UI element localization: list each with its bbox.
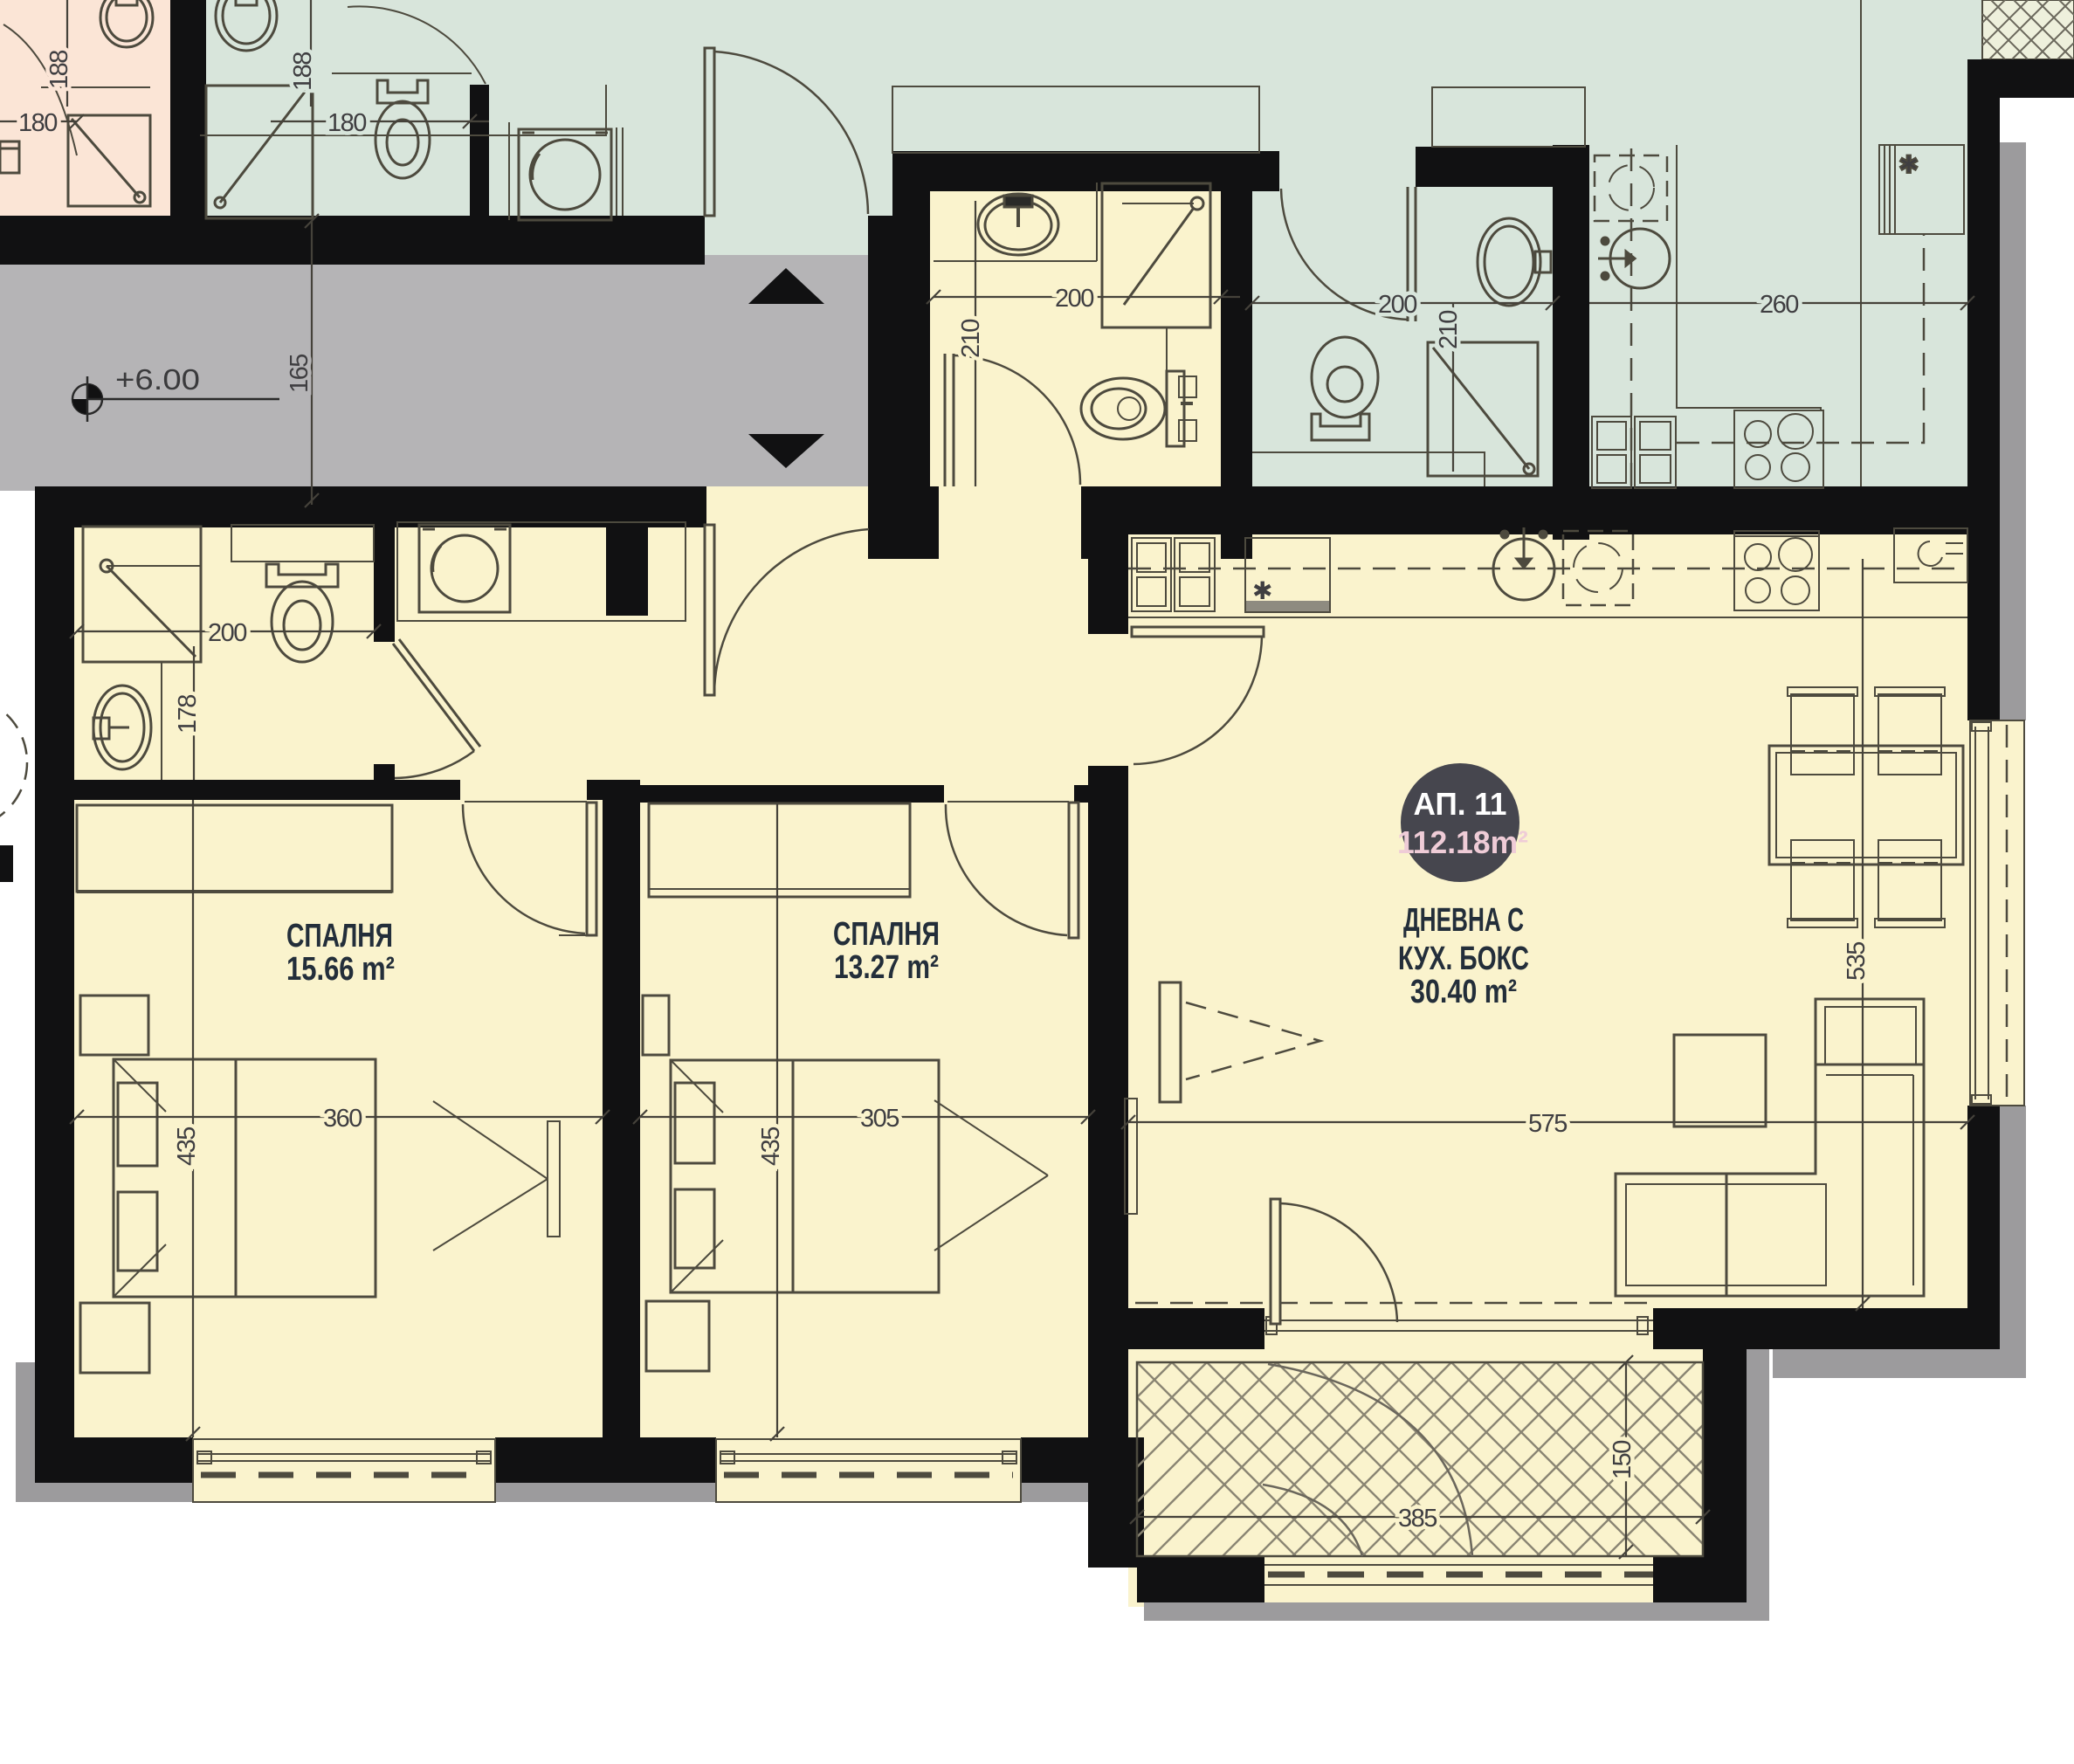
svg-text:575: 575 — [1528, 1110, 1567, 1138]
svg-text:СПАЛНЯ: СПАЛНЯ — [833, 916, 940, 953]
svg-text:435: 435 — [173, 1127, 201, 1166]
svg-text:200: 200 — [1055, 285, 1093, 313]
svg-text:13.27 m²: 13.27 m² — [834, 949, 939, 986]
svg-text:165: 165 — [286, 355, 314, 393]
svg-text:ДНЕВНА С: ДНЕВНА С — [1403, 902, 1524, 939]
svg-text:150: 150 — [1609, 1441, 1636, 1479]
svg-text:15.66 m²: 15.66 m² — [286, 951, 395, 988]
svg-text:СПАЛНЯ: СПАЛНЯ — [286, 918, 393, 954]
svg-text:188: 188 — [289, 52, 317, 91]
svg-text:✱: ✱ — [1252, 577, 1272, 604]
svg-text:210: 210 — [1435, 311, 1463, 349]
svg-text:535: 535 — [1843, 942, 1871, 981]
svg-text:200: 200 — [208, 619, 246, 647]
svg-text:188: 188 — [45, 51, 73, 89]
svg-text:КУХ. БОКС: КУХ. БОКС — [1398, 941, 1529, 977]
svg-text:180: 180 — [18, 109, 57, 137]
svg-text:АП. 11: АП. 11 — [1414, 786, 1507, 822]
svg-text:30.40 m²: 30.40 m² — [1410, 974, 1517, 1010]
svg-text:112.18m²: 112.18m² — [1397, 824, 1528, 860]
svg-text:178: 178 — [174, 695, 202, 734]
svg-text:210: 210 — [957, 320, 985, 358]
svg-text:360: 360 — [323, 1105, 362, 1133]
svg-text:385: 385 — [1398, 1505, 1437, 1533]
svg-text:260: 260 — [1760, 291, 1798, 319]
svg-text:✱: ✱ — [1898, 151, 1919, 178]
svg-text:435: 435 — [757, 1127, 785, 1166]
svg-text:180: 180 — [327, 109, 366, 137]
svg-text:200: 200 — [1378, 291, 1416, 319]
svg-text:+6.00: +6.00 — [115, 363, 200, 396]
svg-text:305: 305 — [860, 1105, 899, 1133]
